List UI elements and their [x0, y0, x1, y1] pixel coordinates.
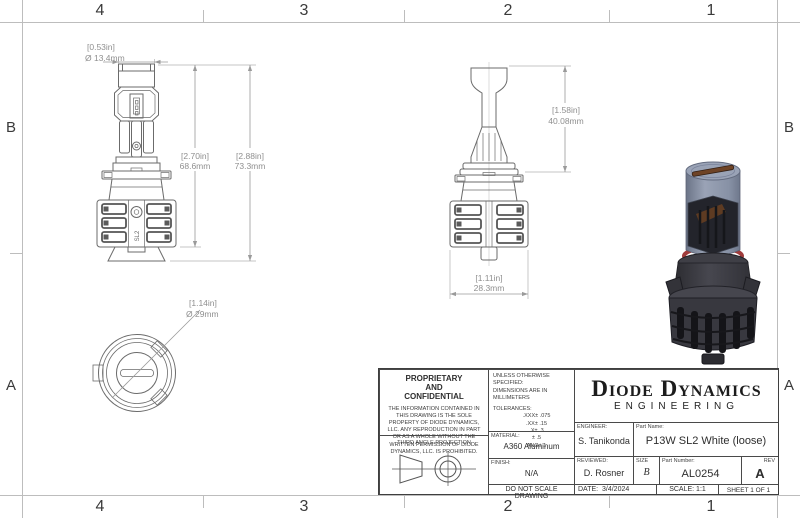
- tolerance-line: .XXX± .075: [493, 413, 570, 420]
- dimension-lines: [119, 59, 572, 299]
- sheet-cell: SHEET 1 OF 1: [718, 484, 778, 494]
- reviewed-cell: REVIEWED: D. Rosner: [574, 456, 633, 484]
- company-division: ENGINEERING: [575, 401, 778, 412]
- dim-front-body-in: [2.70in]: [181, 151, 209, 161]
- dim-front-diameter-in: [0.53in]: [87, 42, 115, 52]
- part-name-cell: Part Name: P13W SL2 White (loose): [633, 422, 778, 456]
- dim-side-width-in: [1.11in]: [475, 273, 502, 283]
- part-name-label: Part Name:: [636, 424, 664, 430]
- material-label: MATERIAL:: [491, 433, 520, 439]
- material-cell: MATERIAL: A360 Aluminum: [488, 431, 574, 458]
- dim-front-total-mm: 73.3mm: [235, 161, 266, 171]
- unless-otherwise-specified: UNLESS OTHERWISE SPECIFIED:: [493, 373, 570, 388]
- company-logo-cell: Diode Dynamics ENGINEERING: [574, 369, 778, 422]
- dim-front-diameter-mm: Ø 13.4mm: [85, 53, 125, 63]
- rev-value: A: [742, 466, 778, 481]
- size-cell: SIZE B: [633, 456, 659, 484]
- part-number-value: AL0254: [660, 468, 741, 480]
- company-name: Diode Dynamics: [575, 377, 778, 400]
- dimension-units: DIMENSIONS ARE IN MILLIMETERS: [493, 388, 570, 403]
- scale-cell: SCALE: 1:1: [656, 484, 718, 494]
- do-not-scale-cell: DO NOT SCALE DRAWING: [488, 484, 574, 494]
- do-not-scale-text: DO NOT SCALE DRAWING: [489, 486, 574, 500]
- rev-label: REV: [764, 458, 775, 464]
- engineer-cell: ENGINEER: S. Tanikonda: [574, 422, 633, 456]
- dim-bottom-diameter-mm: Ø 29mm: [186, 309, 219, 319]
- part-number-cell: Part Number: AL0254: [659, 456, 741, 484]
- part-number-label: Part Number:: [662, 458, 695, 464]
- sheet-text: SHEET 1 OF 1: [719, 487, 778, 494]
- proprietary-cell: PROPRIETARY AND CONFIDENTIAL THE INFORMA…: [379, 369, 488, 435]
- proprietary-heading: CONFIDENTIAL: [380, 393, 488, 402]
- engineer-value: S. Tanikonda: [575, 436, 633, 446]
- dim-front-total-in: [2.88in]: [236, 151, 264, 161]
- side-view: [450, 62, 528, 266]
- reviewed-label: REVIEWED:: [577, 458, 608, 464]
- dim-side-width-mm: 28.3mm: [474, 283, 505, 293]
- front-sl2-logo: SL2: [135, 230, 141, 241]
- size-value: B: [634, 467, 659, 478]
- part-name-value: P13W SL2 White (loose): [634, 435, 778, 447]
- material-value: A360 Aluminum: [489, 442, 574, 451]
- dim-side-top-mm: 40.08mm: [548, 116, 583, 126]
- date-value: 3/4/2024: [602, 486, 629, 493]
- dim-side-top-in: [1.58in]: [552, 105, 580, 115]
- tolerance-line: .XX± .15: [493, 421, 570, 428]
- finish-label: FINISH:: [491, 460, 511, 466]
- led-cage: [688, 196, 738, 254]
- scale-text: SCALE: 1:1: [657, 486, 718, 493]
- front-view: SL2: [97, 64, 176, 261]
- third-angle-label: THIRD ANGLE PROJECTION: [380, 440, 488, 446]
- specs-cell: UNLESS OTHERWISE SPECIFIED: DIMENSIONS A…: [488, 369, 574, 431]
- third-angle-projection-icon: [388, 449, 480, 489]
- finish-value: N/A: [489, 469, 574, 478]
- size-label: SIZE: [636, 458, 648, 464]
- engineer-label: ENGINEER:: [577, 424, 607, 430]
- dim-bottom-diameter-in: [1.14in]: [189, 298, 217, 308]
- bottom-view: [93, 335, 176, 412]
- date-cell: DATE: 3/4/2024: [574, 484, 656, 494]
- title-block: PROPRIETARY AND CONFIDENTIAL THE INFORMA…: [378, 368, 779, 495]
- reviewed-value: D. Rosner: [575, 468, 633, 478]
- finish-cell: FINISH: N/A: [488, 458, 574, 484]
- dim-front-body-mm: 68.6mm: [180, 161, 211, 171]
- date-label: DATE:: [578, 486, 598, 493]
- tolerances-heading: TOLERANCES:: [493, 406, 570, 413]
- third-angle-cell: THIRD ANGLE PROJECTION: [379, 435, 488, 494]
- drawing-sheet: 4 3 2 1 4 3 2 1 B A B A: [0, 0, 800, 518]
- rev-cell: REV A: [741, 456, 778, 484]
- dimension-label-backgrounds: [172, 104, 589, 292]
- isometric-render: [666, 162, 760, 364]
